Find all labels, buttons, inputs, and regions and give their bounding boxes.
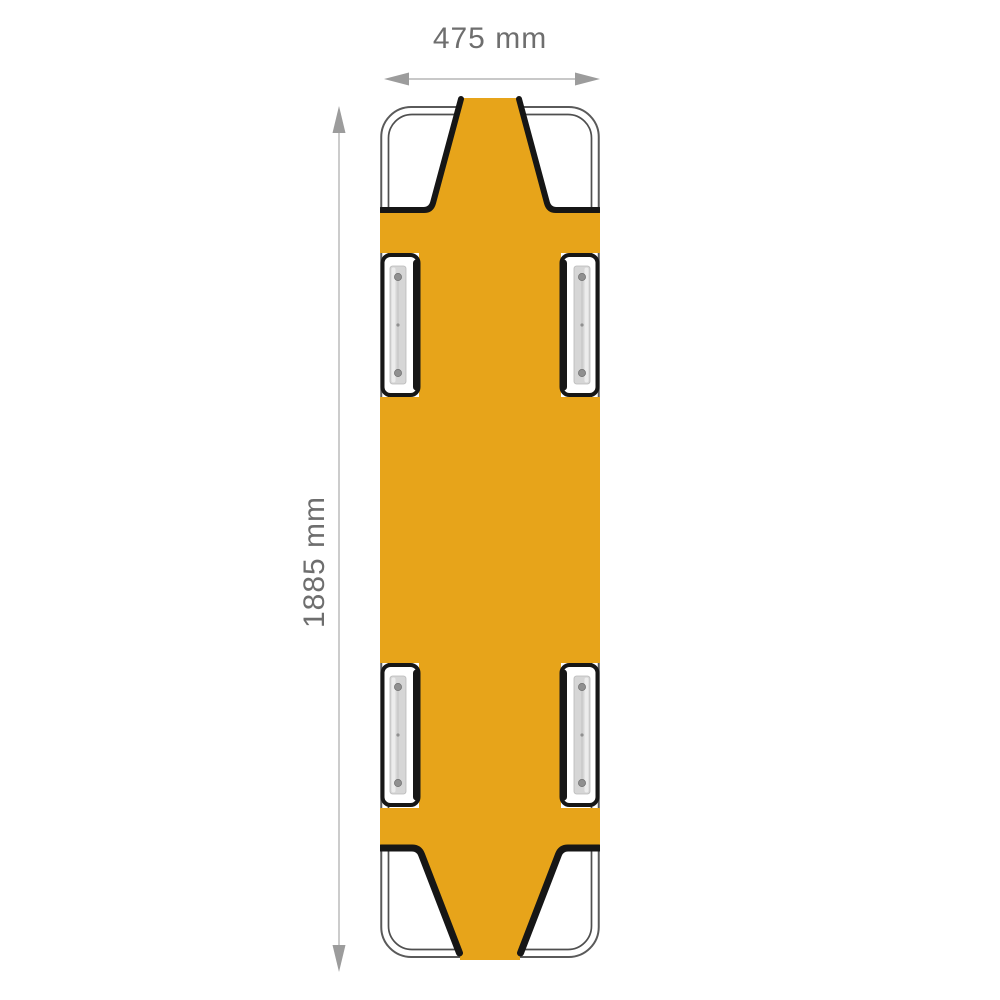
arrowhead-up-icon	[333, 106, 346, 133]
handle-rivet-bottom-icon	[394, 369, 401, 376]
handle-center-pin-icon	[396, 323, 399, 326]
arrowhead-down-icon	[333, 945, 346, 972]
handle-slot-top-right	[562, 255, 598, 395]
handle-slot-bottom-right	[562, 665, 598, 805]
handle-grip-highlight	[392, 268, 396, 383]
width-dimension-label: 475 mm	[380, 22, 600, 56]
stretcher-illustration	[380, 89, 600, 961]
arrowhead-left-icon	[384, 73, 409, 86]
arrowhead-right-icon	[575, 73, 600, 86]
fabric-bed	[380, 98, 600, 960]
product-dimension-diagram: 475 mm 1885 mm	[0, 0, 1000, 1000]
handle-slot-bottom-left	[383, 665, 419, 805]
handle-rivet-top-icon	[394, 273, 401, 280]
handle-slot-top-left	[383, 255, 419, 395]
height-dimension-arrow	[326, 103, 352, 975]
